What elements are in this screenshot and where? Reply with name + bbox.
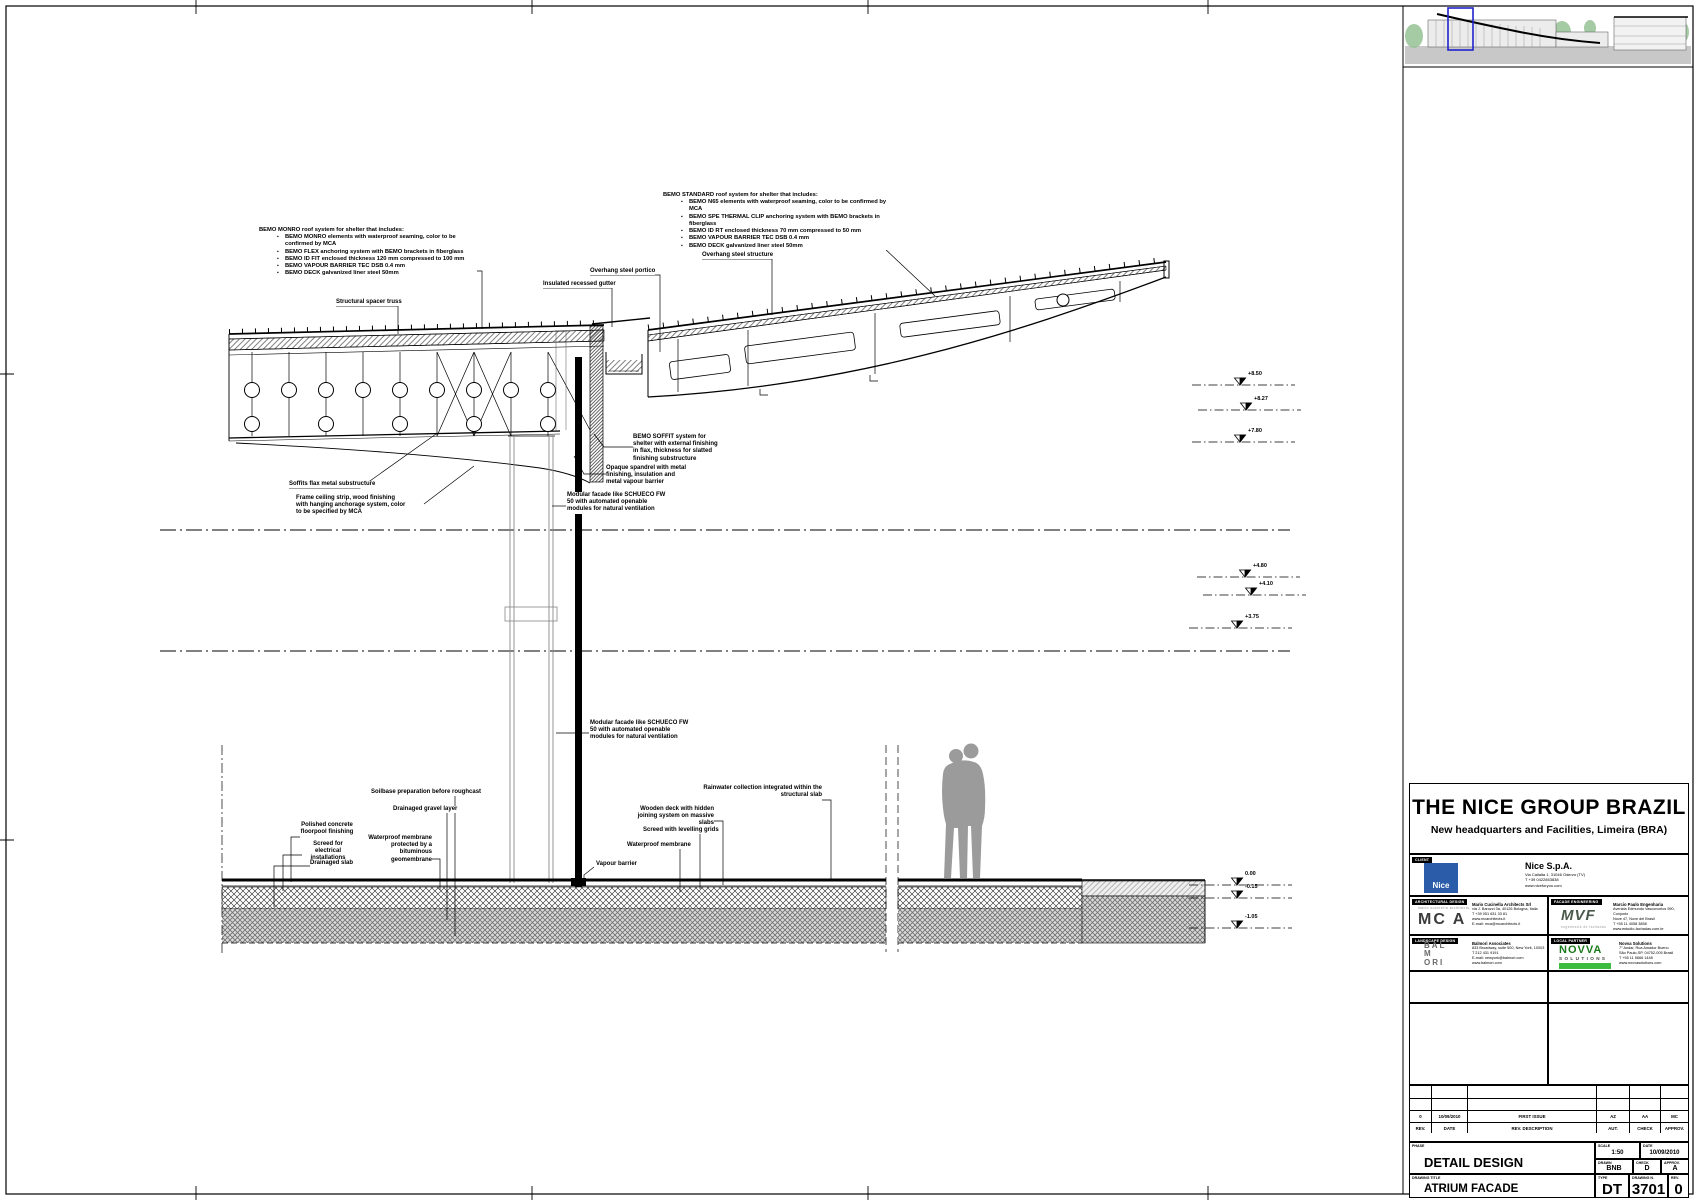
consultant-landscape-box: LANDSCAPE DESIGN BAL M ORI Balmori Assoc… xyxy=(1409,935,1548,971)
left-roof-truss xyxy=(229,323,604,484)
nice-logo: Nice xyxy=(1424,863,1458,893)
rev-value: 10/09/2010 xyxy=(1431,1110,1467,1122)
consultant-line: E-mail: mca@mcarchitects.it xyxy=(1472,922,1546,927)
scale-box: SCALE 1:50 xyxy=(1595,1142,1640,1159)
scale-value: 1:50 xyxy=(1596,1150,1639,1156)
type-box: TYPE DT xyxy=(1595,1174,1629,1198)
label-modular-facade-lower: Modular facade like SCHUECO FW 50 with a… xyxy=(590,720,690,742)
label-soil-prep: Soilbase preparation before roughcast xyxy=(371,789,481,796)
consultant-address: Marcio Paulo Engenharia Avenida Edmundo … xyxy=(1613,902,1687,932)
rev-label: REV. xyxy=(1671,1176,1679,1180)
rev-value: AZ xyxy=(1596,1110,1629,1122)
consultant-line: www.novvasolutions.com xyxy=(1619,961,1687,966)
label-ceiling-strip: Frame ceiling strip, wood finishing with… xyxy=(296,495,406,517)
elevation-value: +3.75 xyxy=(1245,614,1259,620)
approv-box: APPROV. A xyxy=(1661,1159,1689,1174)
consultant-line: Avenida Edmundo Vasconcelos 590, Conjunt… xyxy=(1613,907,1687,917)
rev-value: MC xyxy=(1660,1110,1688,1122)
revision-table: 0 10/09/2010 FIRST ISSUE AZ AA MC REV. D… xyxy=(1409,1085,1689,1142)
drawn-value: BNB xyxy=(1596,1165,1632,1172)
date-value: 10/09/2010 xyxy=(1641,1150,1688,1156)
elevation-value: 0.00 xyxy=(1245,871,1256,877)
drawing-title-label: DRAWING TITLE xyxy=(1412,1176,1440,1180)
rev-value: 0 xyxy=(1669,1181,1688,1198)
note-item: BEMO VAPOUR BARRIER TEC DSB 0.4 mm xyxy=(277,263,477,270)
elevation-value: +8.50 xyxy=(1248,371,1262,377)
truss-chords-lower xyxy=(245,417,556,432)
title-block: THE NICE GROUP BRAZIL New headquarters a… xyxy=(1409,783,1689,1198)
number-value: 3701 xyxy=(1630,1181,1667,1198)
elevation-value: -0.15 xyxy=(1245,884,1258,890)
label-waterproof-protected: Waterproof membrane protected by a bitum… xyxy=(368,835,432,864)
client-line: www.niceforyou.com xyxy=(1525,883,1585,888)
label-vapour-barrier: Vapour barrier xyxy=(596,861,637,868)
drawing-title-box: DRAWING TITLE ATRIUM FACADE xyxy=(1409,1174,1595,1198)
mvf-logo: MVF xyxy=(1561,907,1596,924)
spare-cell xyxy=(1548,1003,1689,1085)
consultant-address: Mario Cucinella Architects Srl via J. Ba… xyxy=(1472,902,1546,927)
consultant-address: Balmori Associates 833 Broadway, suite 5… xyxy=(1472,941,1546,966)
date-label: DATE xyxy=(1643,1144,1653,1148)
scale-label: SCALE xyxy=(1598,1144,1610,1148)
rev-header: AUT. xyxy=(1596,1122,1629,1133)
consultant-engineer-box: FACADE ENGINEERING MVF engenharia de fac… xyxy=(1548,896,1689,935)
rev-header: DATE xyxy=(1431,1122,1467,1133)
rev-box: REV. 0 xyxy=(1668,1174,1689,1198)
glazed-facade xyxy=(505,357,586,887)
label-waterproof-membrane: Waterproof membrane xyxy=(627,842,691,849)
consultant-local-box: LOCAL PARTNER NOVVA SOLUTIONS Novva Solu… xyxy=(1548,935,1689,971)
note-title: BEMO MONRO roof system for shelter that … xyxy=(259,227,477,234)
elevation-value: +4.80 xyxy=(1253,563,1267,569)
elevation-markers xyxy=(1189,378,1306,928)
drawn-box: DRAWN BNB xyxy=(1595,1159,1633,1174)
note-item: BEMO VAPOUR BARRIER TEC DSB 0.4 mm xyxy=(681,235,888,242)
note-item: BEMO MONRO elements with waterproof seam… xyxy=(277,234,477,248)
consultant-architect-box: ARCHITECTURAL DESIGN mario cucinella arc… xyxy=(1409,896,1548,935)
drawn-label: DRAWN xyxy=(1598,1161,1612,1165)
number-label: DRAWING N. xyxy=(1632,1176,1654,1180)
novva-logo: NOVVA xyxy=(1559,944,1602,956)
elevation-ref-lines xyxy=(1189,385,1306,928)
check-value: D xyxy=(1634,1165,1660,1172)
rev-header: CHECK xyxy=(1629,1122,1660,1133)
label-gravel-layer: Drainaged gravel layer xyxy=(393,806,457,813)
rev-value: 0 xyxy=(1410,1110,1431,1122)
note-title: BEMO STANDARD roof system for shelter th… xyxy=(663,192,888,199)
break-lines xyxy=(160,530,1290,651)
number-box: DRAWING N. 3701 xyxy=(1629,1174,1668,1198)
balmori-logo: BAL M ORI xyxy=(1424,942,1446,967)
label-overhang-structure: Overhang steel structure xyxy=(702,252,773,259)
rev-header: REV. xyxy=(1410,1122,1431,1133)
label-overhang-portico: Overhang steel portico xyxy=(590,268,655,275)
note-item: BEMO SPE THERMAL CLIP anchoring system w… xyxy=(681,214,888,228)
consultant-line: www.balmori.com xyxy=(1472,961,1546,966)
spare-cell xyxy=(1409,971,1548,1003)
phase-box: PHASE DETAIL DESIGN xyxy=(1409,1142,1595,1174)
key-plan-buildings xyxy=(1428,17,1686,50)
label-soffits-substructure: Soffits flax metal substructure xyxy=(289,481,375,488)
label-wood-deck: Wooden deck with hidden joining system o… xyxy=(624,806,714,828)
spare-cell xyxy=(1409,1003,1548,1085)
rev-value: FIRST ISSUE xyxy=(1467,1110,1596,1122)
truss-posts xyxy=(252,352,590,436)
mvf-logo-caption: engenharia de fachadas xyxy=(1561,925,1606,929)
rev-header: APPROV. xyxy=(1660,1122,1688,1133)
check-box: CHECK D xyxy=(1633,1159,1661,1174)
consultant-line: www.estudio-fachadas.com.br xyxy=(1613,927,1687,932)
note-item: BEMO ID RT enclosed thickness 70 mm comp… xyxy=(681,228,888,235)
consultant-tag: FACADE ENGINEERING xyxy=(1551,899,1602,905)
note-item: BEMO DECK galvanized liner steel 50mm xyxy=(681,243,888,250)
novva-logo-sub: SOLUTIONS xyxy=(1559,956,1607,961)
note-bemo-standard: BEMO STANDARD roof system for shelter th… xyxy=(663,192,888,250)
note-item: BEMO N65 elements with waterproof seamin… xyxy=(681,199,888,213)
note-item: BEMO FLEX anchoring system with BEMO bra… xyxy=(277,249,477,256)
drawing-title-value: ATRIUM FACADE xyxy=(1424,1183,1594,1195)
label-polished-concrete: Polished concrete floorpool finishing xyxy=(300,822,354,836)
check-label: CHECK xyxy=(1636,1161,1649,1165)
client-box: CLIENT Nice Nice S.p.A. Via Callalta 1, … xyxy=(1409,854,1689,896)
label-soffit-system: BEMO SOFFIT system for shelter with exte… xyxy=(633,434,721,463)
person-silhouettes xyxy=(942,744,985,879)
portico-stiffeners xyxy=(678,281,1120,395)
approv-label: APPROV. xyxy=(1664,1161,1680,1165)
approv-value: A xyxy=(1662,1165,1688,1172)
drawing-sheet: { "colors":{"keyplan_highlight":"#2222cc… xyxy=(0,0,1699,1200)
label-rainwater: Rainwater collection integrated within t… xyxy=(702,785,822,799)
label-modular-facade-upper: Modular facade like SCHUECO FW 50 with a… xyxy=(567,492,667,514)
phase-label: PHASE xyxy=(1412,1144,1424,1148)
client-address: Nice S.p.A. Via Callalta 1, 31046 Oderzo… xyxy=(1525,861,1585,888)
truss-chords-upper xyxy=(245,383,556,398)
project-subtitle: New headquarters and Facilities, Limeira… xyxy=(1410,824,1688,836)
label-spandrel: Opaque spandrel with metal finishing, in… xyxy=(606,465,690,487)
note-bemo-monro: BEMO MONRO roof system for shelter that … xyxy=(259,227,477,278)
consultant-tag: ARCHITECTURAL DESIGN xyxy=(1412,899,1467,905)
portico-pipe-detail xyxy=(1057,294,1069,306)
fold-marks xyxy=(0,0,1208,1200)
project-title-box: THE NICE GROUP BRAZIL New headquarters a… xyxy=(1409,783,1689,854)
type-label: TYPE xyxy=(1598,1176,1607,1180)
mca-logo: MC A xyxy=(1418,911,1466,929)
elevation-value: +4.10 xyxy=(1259,581,1273,587)
note-item: BEMO DECK galvanized liner steel 50mm xyxy=(277,270,477,277)
rev-value: AA xyxy=(1629,1110,1660,1122)
rev-header: REV. DESCRIPTION xyxy=(1467,1122,1596,1133)
elevation-value: +7.80 xyxy=(1248,428,1262,434)
label-screed-grid: Screed with levelling grids xyxy=(643,827,719,834)
key-plan xyxy=(1405,8,1691,64)
date-box: DATE 10/09/2010 xyxy=(1640,1142,1689,1159)
overhang-roof xyxy=(648,259,1169,397)
label-spacer-truss: Structural spacer truss xyxy=(336,299,402,306)
project-title: THE NICE GROUP BRAZIL xyxy=(1410,796,1688,820)
novva-logo-bar xyxy=(1559,963,1611,969)
consultant-address: Novva Solutions 7° Andar, Rua Amador Bue… xyxy=(1619,941,1687,966)
facade-column xyxy=(575,357,582,887)
elevation-triangles xyxy=(1232,378,1257,928)
label-insulated-gutter: Insulated recessed gutter xyxy=(543,281,616,288)
phase-value: DETAIL DESIGN xyxy=(1424,1155,1594,1170)
elevation-value: -1.05 xyxy=(1245,914,1258,920)
label-drainaged-slab: Drainaged slab xyxy=(310,860,353,867)
client-name: Nice S.p.A. xyxy=(1525,861,1585,872)
note-item: BEMO ID FIT enclosed thickness 120 mm co… xyxy=(277,256,477,263)
mca-logo-caption: mario cucinella architects xyxy=(1418,906,1469,910)
elevation-value: +8.27 xyxy=(1254,396,1268,402)
spare-cell xyxy=(1548,971,1689,1003)
type-value: DT xyxy=(1596,1181,1628,1198)
